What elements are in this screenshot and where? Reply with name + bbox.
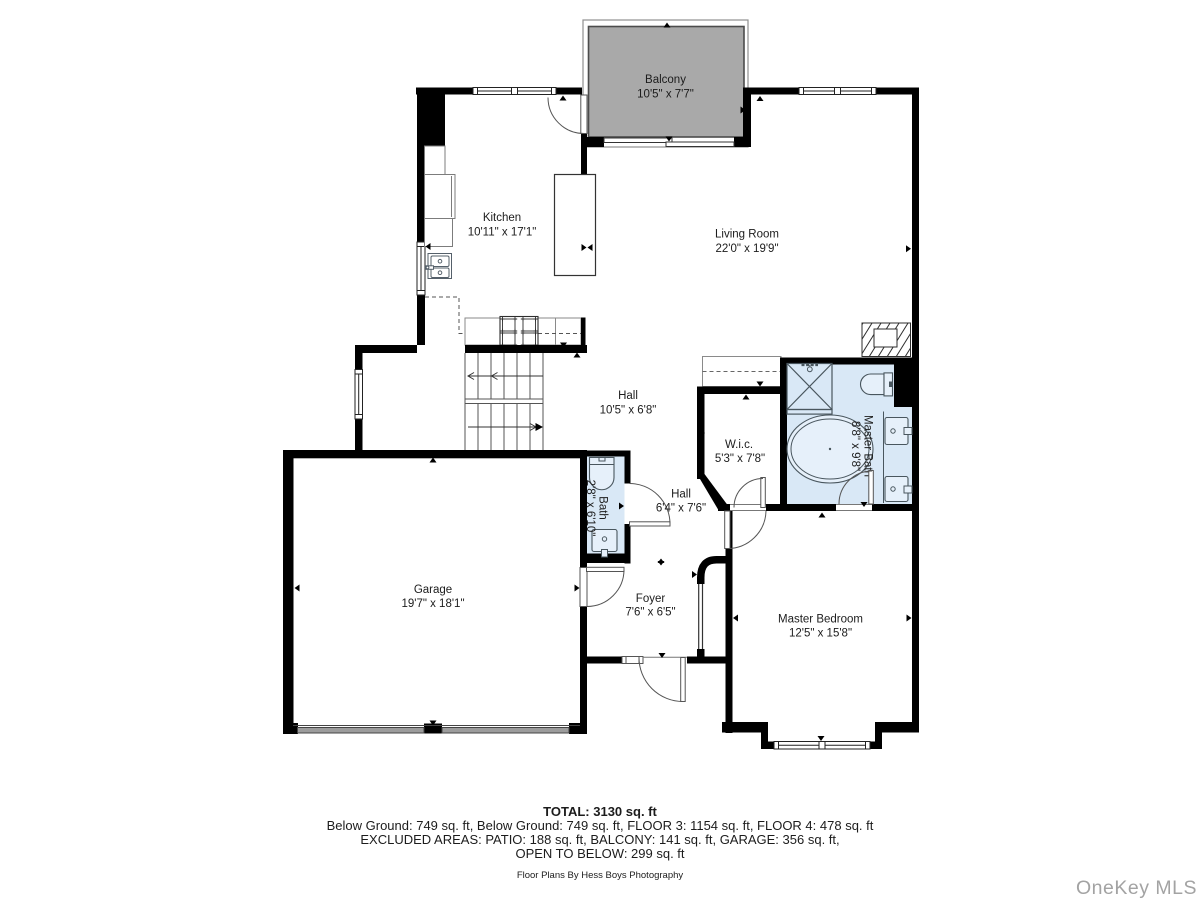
svg-text:8'8" x 9'8": 8'8" x 9'8" [849, 421, 861, 471]
svg-text:22'0" x 19'9": 22'0" x 19'9" [715, 243, 778, 255]
svg-text:10'5" x 6'8": 10'5" x 6'8" [600, 405, 657, 417]
svg-text:Below Ground: 749 sq. ft, Belo: Below Ground: 749 sq. ft, Below Ground: … [327, 818, 874, 833]
svg-text:Balcony: Balcony [645, 74, 686, 86]
svg-text:W.i.c.: W.i.c. [725, 439, 753, 451]
svg-text:19'7" x 18'1": 19'7" x 18'1" [401, 598, 464, 610]
svg-text:Foyer: Foyer [636, 593, 666, 605]
svg-text:7'6" x 6'5": 7'6" x 6'5" [625, 607, 675, 619]
svg-text:Kitchen: Kitchen [483, 212, 521, 224]
svg-text:Living Room: Living Room [715, 229, 779, 241]
svg-text:12'5" x 15'8": 12'5" x 15'8" [789, 628, 852, 640]
svg-text:Master Bath: Master Bath [862, 415, 874, 477]
svg-text:OneKey MLS: OneKey MLS [1076, 877, 1197, 899]
svg-text:Bath: Bath [597, 496, 609, 520]
svg-text:Hall: Hall [618, 390, 638, 402]
svg-text:5'3" x 7'8": 5'3" x 7'8" [715, 453, 765, 465]
svg-text:Garage: Garage [414, 584, 452, 596]
svg-text:10'11" x 17'1": 10'11" x 17'1" [468, 227, 537, 239]
svg-text:10'5" x 7'7": 10'5" x 7'7" [637, 89, 694, 101]
svg-text:2'8" x 6'10": 2'8" x 6'10" [584, 480, 596, 537]
svg-text:EXCLUDED AREAS: PATIO: 188 sq.: EXCLUDED AREAS: PATIO: 188 sq. ft, BALCO… [360, 832, 839, 847]
svg-text:Hall: Hall [671, 489, 691, 501]
svg-text:TOTAL: 3130 sq. ft: TOTAL: 3130 sq. ft [543, 804, 657, 819]
svg-text:Master Bedroom: Master Bedroom [778, 614, 863, 626]
svg-text:6'4" x 7'6": 6'4" x 7'6" [656, 503, 706, 515]
svg-text:Floor Plans By Hess Boys Photo: Floor Plans By Hess Boys Photography [517, 870, 684, 881]
svg-text:OPEN TO BELOW: 299 sq. ft: OPEN TO BELOW: 299 sq. ft [515, 846, 684, 861]
